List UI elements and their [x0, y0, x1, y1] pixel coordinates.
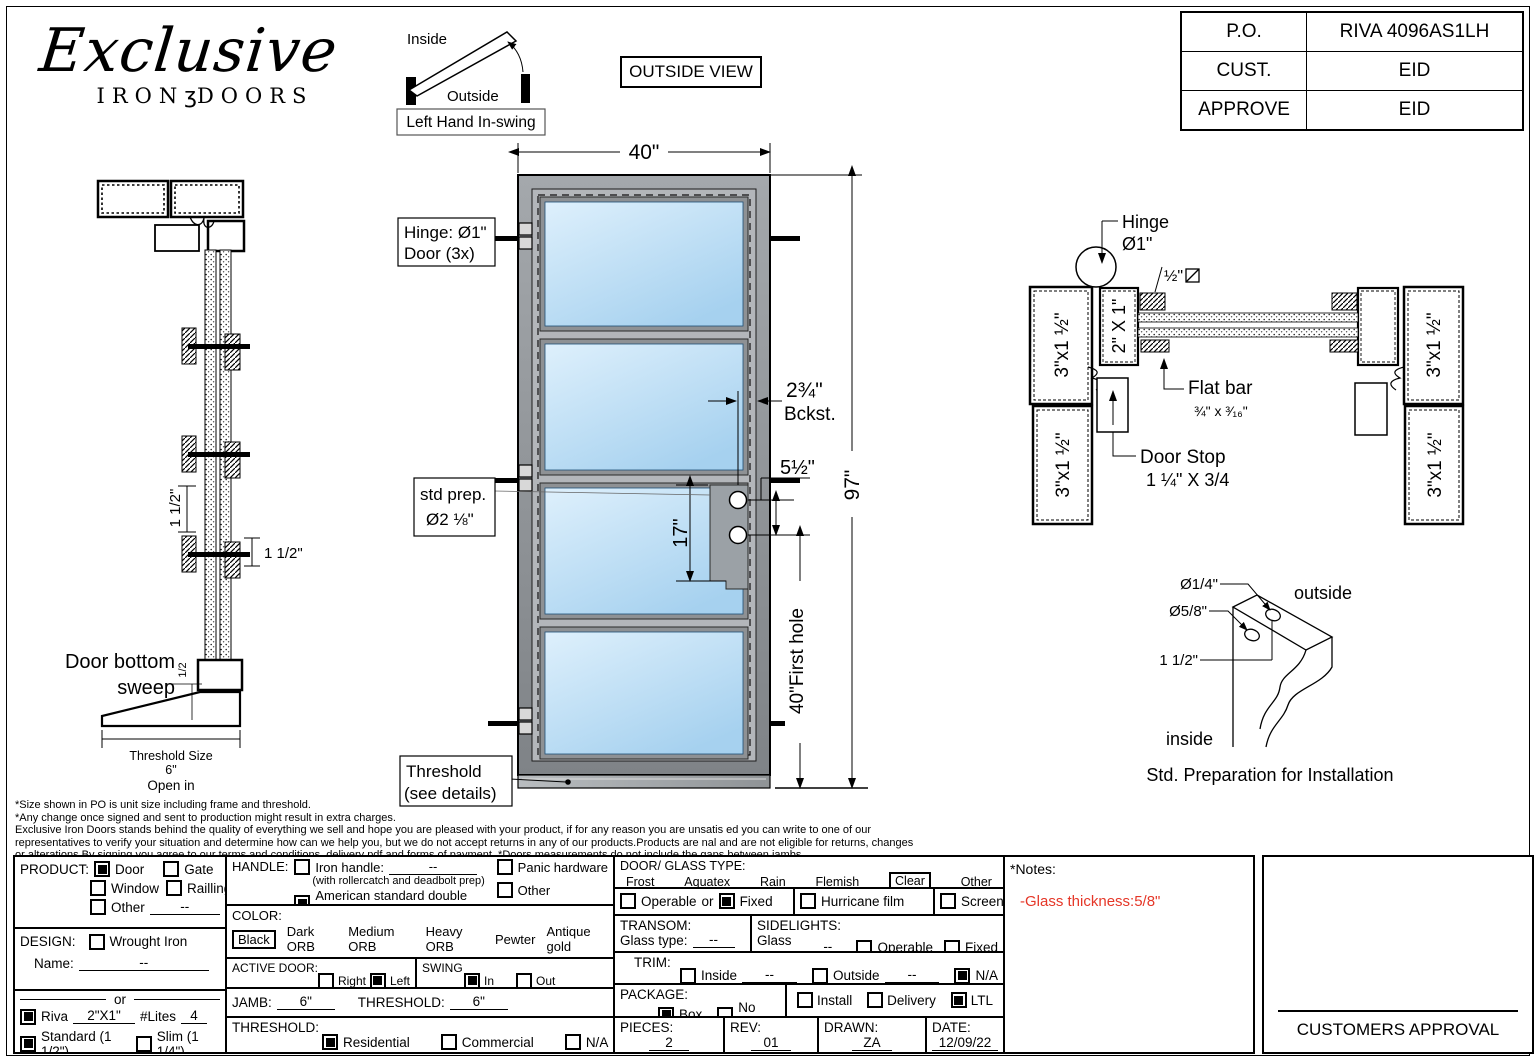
design-name-label: Name: — [34, 956, 74, 971]
checkbox-panic[interactable] — [497, 859, 513, 875]
swing-cell: SWING In Out — [417, 959, 613, 987]
edge-dist-dim: 1 1/2" — [1159, 652, 1198, 669]
riva-profile-value: 2"X1" — [73, 1009, 135, 1024]
std-prep-1: std prep. — [420, 485, 486, 504]
jamb-profile-label-2: 3"x1 ½" — [1053, 432, 1074, 497]
trim-outside-value: -- — [885, 968, 940, 983]
option-fixed[interactable]: Fixed — [740, 894, 773, 909]
swing-right-jamb — [521, 74, 530, 103]
corner-bracket-shape — [1233, 595, 1332, 747]
option-riva[interactable]: Riva — [41, 1009, 68, 1024]
checkbox-hurricane[interactable] — [800, 893, 816, 909]
transom-label: TRANSOM: — [620, 918, 745, 933]
sweep-label-2: sweep — [117, 677, 175, 699]
checkbox-residential[interactable] — [322, 1034, 338, 1050]
threshold-size-value: 6" — [450, 995, 508, 1010]
option-operable[interactable]: Operable — [641, 894, 697, 909]
option-sidelight-operable[interactable]: Operable — [877, 940, 933, 951]
checkbox-box[interactable] — [658, 1007, 674, 1016]
hole-large-dim: Ø5/8" — [1169, 603, 1207, 620]
height-dim-text: 97" — [841, 470, 864, 501]
option-screen[interactable]: Screen — [961, 894, 1003, 909]
std-prep-2: Ø2 ⅛" — [426, 510, 474, 529]
pieces-label: PIECES: — [620, 1020, 718, 1035]
install-dims: Ø1/4" Ø5/8" 1 1/2" — [1159, 576, 1272, 669]
option-gate[interactable]: Gate — [184, 862, 213, 877]
pieces-cell: PIECES: 2 — [615, 1018, 723, 1052]
date-cell: DATE: 12/09/22 — [927, 1018, 1003, 1052]
install-caption: Std. Preparation for Installation — [1146, 765, 1393, 785]
disclaimer-line: *Any change once signed and sent to prod… — [15, 812, 913, 825]
option-window[interactable]: Window — [111, 881, 159, 896]
checkbox-delivery[interactable] — [867, 992, 883, 1008]
option-slim[interactable]: Slim (1 1/4") — [157, 1029, 220, 1052]
jamb-cell: JAMB: 6" THRESHOLD: 6" — [227, 989, 613, 1016]
logo-subtitle: IRONʒDOORS — [40, 84, 370, 109]
backset-label-text: Bckst. — [784, 404, 836, 425]
option-handle-other[interactable]: Other — [518, 883, 551, 898]
inside-label: inside — [1166, 729, 1213, 749]
checkbox-install[interactable] — [797, 992, 813, 1008]
transom-cell: TRANSOM: Glass type: -- — [615, 916, 750, 951]
threshold-size-3: Open in — [147, 778, 194, 793]
checkbox-trim-na[interactable] — [954, 968, 970, 983]
swing-caption: Left Hand In-swing — [406, 114, 535, 131]
checkbox-screen[interactable] — [940, 893, 956, 909]
po-value: RIVA 4096AS1LH — [1306, 13, 1522, 51]
flat-bar-callout: Flat bar ¾" x ³⁄₁₆" — [1164, 359, 1253, 419]
glass-type-label: DOOR/ GLASS TYPE: — [620, 859, 998, 873]
threshold-size-1: Threshold Size — [129, 749, 212, 763]
option-threshold-na[interactable]: N/A — [586, 1035, 609, 1050]
option-commercial[interactable]: Commercial — [462, 1035, 534, 1050]
option-install[interactable]: Install — [817, 993, 852, 1008]
hole-spacing-text: 5½" — [780, 457, 815, 479]
drawn-cell: DRAWN: ZA — [819, 1018, 925, 1052]
jamb-value: 6" — [277, 995, 335, 1010]
checkbox-american-boring[interactable] — [294, 895, 310, 904]
drawn-value: ZA — [852, 1036, 892, 1051]
glass-thickness-note: -Glass thickness:5/8" — [1020, 893, 1248, 910]
install-prep-detail: Ø1/4" Ø5/8" 1 1/2" outside inside Std. P… — [1130, 553, 1430, 793]
rev-value: 01 — [751, 1036, 791, 1051]
pieces-value: 2 — [649, 1036, 689, 1051]
right-squiggle — [1391, 367, 1404, 390]
flat-bar-size: ¾" x ³⁄₁₆" — [1194, 403, 1248, 419]
color-medium-orb[interactable]: Medium ORB — [348, 924, 414, 954]
checkbox-fixed[interactable] — [719, 893, 735, 909]
outside-view-label: OUTSIDE VIEW — [620, 56, 762, 88]
cust-label: CUST. — [1182, 51, 1306, 90]
notes-label: *Notes: — [1010, 861, 1248, 877]
glass-flemish[interactable]: Flemish — [815, 875, 859, 888]
title-block-table: P.O. RIVA 4096AS1LH CUST. EID APPROVE EI… — [1180, 11, 1524, 131]
logo-word-iron: IRON — [97, 84, 185, 108]
disclaimer: *Size shown in PO is unit size including… — [15, 799, 913, 862]
transom-glass-label: Glass type: — [620, 933, 688, 948]
operation-or: or — [702, 894, 714, 909]
threshold-type-cell: THRESHOLD: Residential Commercial N/A — [227, 1018, 613, 1052]
signature-line[interactable] — [1278, 1010, 1518, 1012]
product-label: PRODUCT: — [20, 862, 89, 877]
lock-block — [710, 485, 748, 589]
riva-cell: or Riva 2"X1" #Lites 4 Standard (1 1/2")… — [15, 991, 225, 1052]
option-iron-handle[interactable]: Iron handle: — [315, 860, 384, 875]
glass-rain[interactable]: Rain — [760, 875, 786, 888]
hinge-detail-dia: Ø1" — [1122, 234, 1152, 254]
door-stop-size: 1 ¼" X 3/4 — [1146, 470, 1229, 490]
logo-script-text: Exclusive — [37, 22, 373, 80]
checkbox-no-box[interactable] — [717, 1007, 733, 1016]
option-hurricane[interactable]: Hurricane film — [821, 894, 904, 909]
option-trim-na[interactable]: N/A — [975, 968, 998, 983]
option-no-box[interactable]: No box — [738, 1000, 780, 1016]
option-door[interactable]: Door — [115, 862, 144, 877]
checkbox-slim[interactable] — [136, 1036, 152, 1052]
door-slab-plan — [1138, 313, 1358, 337]
glass-other[interactable]: Other — [961, 875, 992, 888]
checkbox-operable[interactable] — [620, 893, 636, 909]
screen-cell: Screen — [935, 889, 1003, 913]
option-delivery[interactable]: Delivery — [887, 993, 936, 1008]
glass-stops — [1140, 293, 1358, 352]
checkbox-sidelight-fixed[interactable] — [944, 940, 960, 951]
square-bar-callout: ½" — [1155, 267, 1199, 292]
handle-cell: HANDLE: Iron handle: -- (with rollercatc… — [227, 857, 613, 904]
logo-ornament-icon: ʒ — [184, 84, 197, 109]
checkbox-sidelight-operable[interactable] — [856, 940, 872, 951]
lites-label: #Lites — [140, 1009, 176, 1024]
jamb-plan-section: 3"x1 ½" 3"x1 ½" 3"x1 ½" 3"x1 ½" 2" X 1" … — [1018, 193, 1534, 545]
glass-clear-selected[interactable]: Clear — [889, 872, 931, 887]
disclaimer-line: representatives to verify your situation… — [15, 837, 913, 850]
jamb-vertical-section: 1 1/2" 1 1/2" 1/2 Door bottom sweep Thre… — [20, 168, 350, 868]
active-door-cell: ACTIVE DOOR: Right Left — [227, 959, 415, 987]
deadbolt-bore — [730, 492, 747, 509]
logo-word-doors: DOORS — [197, 84, 313, 108]
hinge-detail-label: Hinge — [1122, 212, 1169, 232]
jamb-profile-label-4: 3"x1 ½" — [1425, 432, 1446, 497]
rev-cell: REV: 01 — [725, 1018, 817, 1052]
threshold-type-label: THRESHOLD: — [232, 1020, 608, 1035]
disclaimer-line: *Size shown in PO is unit size including… — [15, 799, 913, 812]
checkbox-product-other[interactable] — [90, 899, 106, 915]
transom-value: -- — [693, 933, 735, 948]
door-elevation: 40" 97" 2¾" Bckst. 5½" — [390, 133, 880, 813]
threshold-callout-1: Threshold — [406, 762, 482, 781]
po-label: P.O. — [1182, 13, 1306, 51]
hinge-callout-2: Door (3x) — [404, 244, 475, 263]
checkbox-window[interactable] — [90, 880, 106, 896]
package-cell: PACKAGE: Box No box — [615, 985, 785, 1016]
checkbox-riva[interactable] — [20, 1009, 36, 1025]
drawn-label: DRAWN: — [824, 1020, 920, 1035]
sweep-label-1: Door bottom — [65, 651, 175, 673]
checkbox-in[interactable] — [464, 973, 480, 987]
checkbox-left[interactable] — [370, 973, 386, 987]
design-label: DESIGN: — [20, 934, 76, 949]
option-product-other[interactable]: Other — [111, 900, 145, 915]
sidelights-cell: SIDELIGHTS: Glass type: -- Operable Fixe… — [752, 916, 1003, 951]
backset-dim-text: 2¾" — [786, 379, 823, 402]
flat-bar-label: Flat bar — [1188, 378, 1253, 399]
approve-value: EID — [1306, 90, 1522, 129]
width-dim-text: 40" — [629, 141, 660, 164]
checkbox-trim-outside[interactable] — [812, 968, 828, 983]
operation-cell: Operable or Fixed — [615, 889, 793, 913]
rev-label: REV: — [730, 1020, 812, 1035]
option-box[interactable]: Box — [679, 1007, 702, 1016]
trim-cell: TRIM: Inside -- Outside -- N/A — [615, 953, 1003, 983]
jamb-profile-label-3: 3"x1 ½" — [1424, 312, 1445, 377]
design-cell: DESIGN: Wrought Iron Name: -- — [15, 929, 225, 989]
option-out[interactable]: Out — [536, 974, 555, 987]
door-stop-label: Door Stop — [1140, 447, 1226, 468]
cust-value: EID — [1306, 51, 1522, 90]
door-spec-sheet: Exclusive IRONʒDOORS Inside Outside Left… — [0, 0, 1536, 1062]
option-left[interactable]: Left — [390, 974, 410, 987]
option-wrought-iron[interactable]: Wrought Iron — [110, 934, 188, 949]
option-sidelight-fixed[interactable]: Fixed — [965, 940, 998, 951]
swing-outside-label: Outside — [447, 88, 499, 105]
order-form: PRODUCT: Door Gate Window Railling Other… — [13, 855, 1255, 1054]
checkbox-iron-handle[interactable] — [294, 859, 310, 875]
threshold-size-dim: Threshold Size 6" Open in — [102, 730, 240, 793]
trim-inside-value: -- — [742, 968, 797, 983]
sidelights-value: -- — [812, 940, 843, 951]
checkbox-right[interactable] — [318, 973, 334, 987]
delivery-cell: Install Delivery LTL — [787, 985, 1003, 1016]
checkbox-standard[interactable] — [20, 1036, 36, 1052]
handle-label: HANDLE: — [232, 859, 288, 904]
swing-arc — [508, 42, 523, 72]
color-antique-gold[interactable]: Antique gold — [546, 924, 608, 954]
color-heavy-orb[interactable]: Heavy ORB — [426, 924, 484, 954]
option-trim-inside[interactable]: Inside — [701, 968, 737, 983]
hinge-detail: Hinge Ø1" — [1076, 212, 1169, 287]
swing-diagram: Inside Outside Left Hand In-swing — [395, 22, 565, 137]
glazing-dim-vertical: 1 1/2" — [167, 489, 184, 528]
head-jamb-profiles — [98, 181, 244, 251]
hinge-callout: Hinge: Ø1" Door (3x) — [398, 218, 495, 266]
option-standard[interactable]: Standard (1 1/2") — [41, 1029, 129, 1052]
handle-bore — [730, 527, 747, 544]
iron-handle-note: (with rollercatch and deadbolt prep) — [312, 875, 490, 887]
swing-inside-label: Inside — [407, 31, 447, 48]
outside-label: outside — [1294, 583, 1352, 603]
checkbox-out[interactable] — [516, 973, 532, 987]
threshold-size-2: 6" — [165, 763, 176, 777]
color-pewter[interactable]: Pewter — [495, 932, 535, 947]
option-in[interactable]: In — [484, 974, 494, 987]
company-logo: Exclusive IRONʒDOORS — [40, 22, 370, 109]
hole-small-dim: Ø1/4" — [1180, 576, 1218, 593]
option-right[interactable]: Right — [338, 974, 366, 987]
sweep-dim: 1/2 — [177, 662, 189, 677]
checkbox-commercial[interactable] — [441, 1034, 457, 1050]
option-american-boring[interactable]: American standard double boring — [315, 888, 490, 904]
approval-box: CUSTOMERS APPROVAL — [1262, 855, 1534, 1054]
threshold-size-label: THRESHOLD: — [358, 995, 445, 1010]
iron-handle-value: -- — [389, 860, 477, 875]
hinge-callout-1: Hinge: Ø1" — [404, 223, 487, 242]
glass-aquatex[interactable]: Aquatex — [684, 875, 730, 888]
sidelights-label: SIDELIGHTS: — [757, 918, 998, 933]
option-railing[interactable]: Railling — [187, 881, 225, 896]
date-value: 12/09/22 — [932, 1036, 998, 1051]
door-stop-callout: Door Stop 1 ¼" X 3/4 — [1113, 432, 1229, 490]
approval-label: CUSTOMERS APPROVAL — [1264, 1020, 1532, 1040]
checkbox-wrought-iron[interactable] — [89, 934, 105, 950]
color-black-selected[interactable]: Black — [232, 930, 276, 949]
date-label: DATE: — [932, 1020, 998, 1035]
glass-frost[interactable]: Frost — [626, 875, 654, 888]
sidelights-glass-label: Glass type: — [757, 933, 807, 951]
option-ltl[interactable]: LTL — [971, 993, 993, 1008]
color-dark-orb[interactable]: Dark ORB — [287, 924, 337, 954]
notes-cell: *Notes: -Glass thickness:5/8" — [1005, 857, 1253, 1052]
checkbox-trim-inside[interactable] — [680, 968, 696, 983]
square-bar-dim-text: ½" — [1164, 268, 1183, 285]
lites-value: 4 — [181, 1009, 207, 1024]
glazing-dim-horizontal: 1 1/2" — [264, 545, 303, 562]
checkbox-door[interactable] — [94, 861, 110, 877]
checkbox-gate[interactable] — [163, 861, 179, 877]
first-hole-text: 40"First hole — [787, 608, 808, 714]
checkbox-railing[interactable] — [166, 880, 182, 896]
approve-label: APPROVE — [1182, 90, 1306, 129]
product-other-value: -- — [150, 900, 220, 915]
option-trim-outside[interactable]: Outside — [833, 968, 880, 983]
option-residential[interactable]: Residential — [343, 1035, 410, 1050]
color-cell: COLOR: Black Dark ORB Medium ORB Heavy O… — [227, 906, 613, 957]
width-dimension: 40" — [518, 139, 770, 173]
disclaimer-line: Exclusive Iron Doors stands behind the q… — [15, 824, 913, 837]
or-label: or — [114, 992, 126, 1007]
jamb-profile-label-1: 3"x1 ½" — [1052, 312, 1073, 377]
product-cell: PRODUCT: Door Gate Window Railling Other… — [15, 857, 225, 927]
option-panic[interactable]: Panic hardware — [518, 860, 608, 875]
hurricane-cell: Hurricane film — [795, 889, 933, 913]
design-name-value: -- — [79, 956, 209, 971]
jamb-label: JAMB: — [232, 995, 272, 1010]
lock-height-text: 17" — [670, 518, 692, 547]
checkbox-ltl[interactable] — [951, 992, 967, 1008]
color-label: COLOR: — [232, 908, 608, 923]
stile-profile-label: 2" X 1" — [1109, 299, 1129, 354]
glass-type-cell: DOOR/ GLASS TYPE: Frost Aquatex Rain Fle… — [615, 857, 1003, 887]
checkbox-handle-other[interactable] — [497, 882, 513, 898]
checkbox-threshold-na[interactable] — [565, 1034, 581, 1050]
